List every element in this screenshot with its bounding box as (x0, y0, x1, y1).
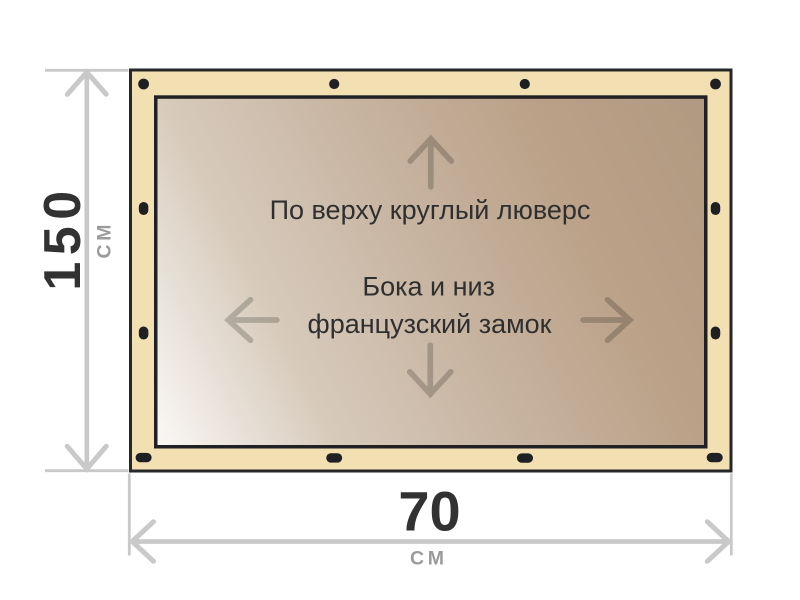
svg-text:По верху круглый люверс: По верху круглый люверс (270, 195, 591, 225)
svg-text:Бока и низ: Бока и низ (362, 272, 495, 302)
svg-text:СМ: СМ (94, 220, 116, 258)
svg-text:150: 150 (34, 184, 92, 290)
svg-text:СМ: СМ (410, 548, 448, 570)
svg-text:французский замок: французский замок (308, 309, 552, 339)
svg-text:70: 70 (398, 480, 460, 543)
